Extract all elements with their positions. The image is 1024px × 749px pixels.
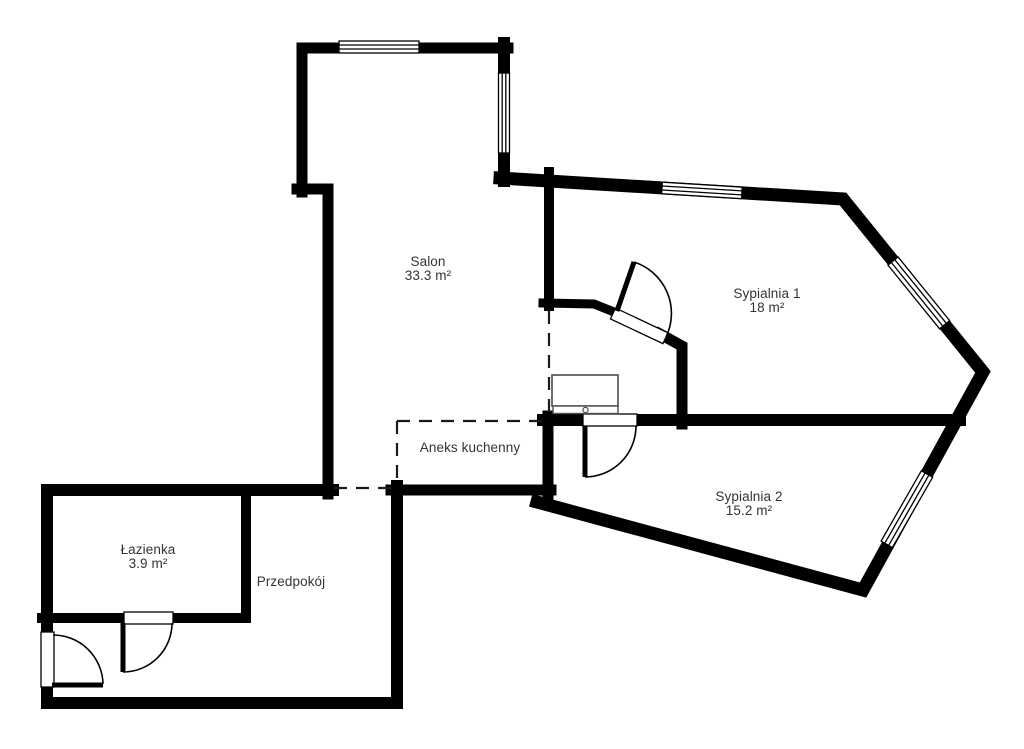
tv-unit — [552, 375, 618, 414]
room-name: Sypialnia 2 — [715, 489, 782, 504]
room-label-salon: Salon 33.3 m² — [405, 255, 451, 283]
doors — [41, 262, 671, 687]
windows — [339, 41, 950, 548]
room-name: Sypialnia 1 — [733, 286, 800, 301]
room-area: 15.2 m² — [715, 504, 782, 518]
floor-plan-drawing — [0, 0, 1024, 749]
room-name: Salon — [410, 254, 445, 269]
open-boundary-dashed-lines — [334, 311, 549, 488]
room-label-lazienka: Łazienka 3.9 m² — [121, 543, 176, 571]
sypialnia1-diagonal-window — [888, 257, 950, 329]
room-area: 3.9 m² — [121, 557, 176, 571]
salon-top-window — [339, 41, 419, 53]
room-area: 18 m² — [733, 301, 800, 315]
floor-plan: Salon 33.3 m² Sypialnia 1 18 m² Sypialni… — [0, 0, 1024, 749]
sypialnia2-diagonal-window — [881, 471, 933, 548]
sypialnia1-top-window — [662, 182, 743, 198]
room-name: Łazienka — [121, 542, 176, 557]
room-name: Aneks kuchenny — [420, 440, 520, 455]
entry-door — [41, 632, 103, 687]
room-label-przedpokoj: Przedpokój — [257, 575, 326, 589]
sypialnia1-door — [610, 262, 671, 344]
room-label-aneks-kuchenny: Aneks kuchenny — [420, 441, 520, 455]
room-label-sypialnia1: Sypialnia 1 18 m² — [733, 287, 800, 315]
lazienka-door — [123, 612, 173, 672]
salon-right-window — [499, 73, 510, 153]
sypialnia2-door — [583, 414, 637, 477]
room-name: Przedpokój — [257, 574, 326, 589]
room-area: 33.3 m² — [405, 269, 451, 283]
walls — [42, 43, 983, 703]
room-label-sypialnia2: Sypialnia 2 15.2 m² — [715, 490, 782, 518]
